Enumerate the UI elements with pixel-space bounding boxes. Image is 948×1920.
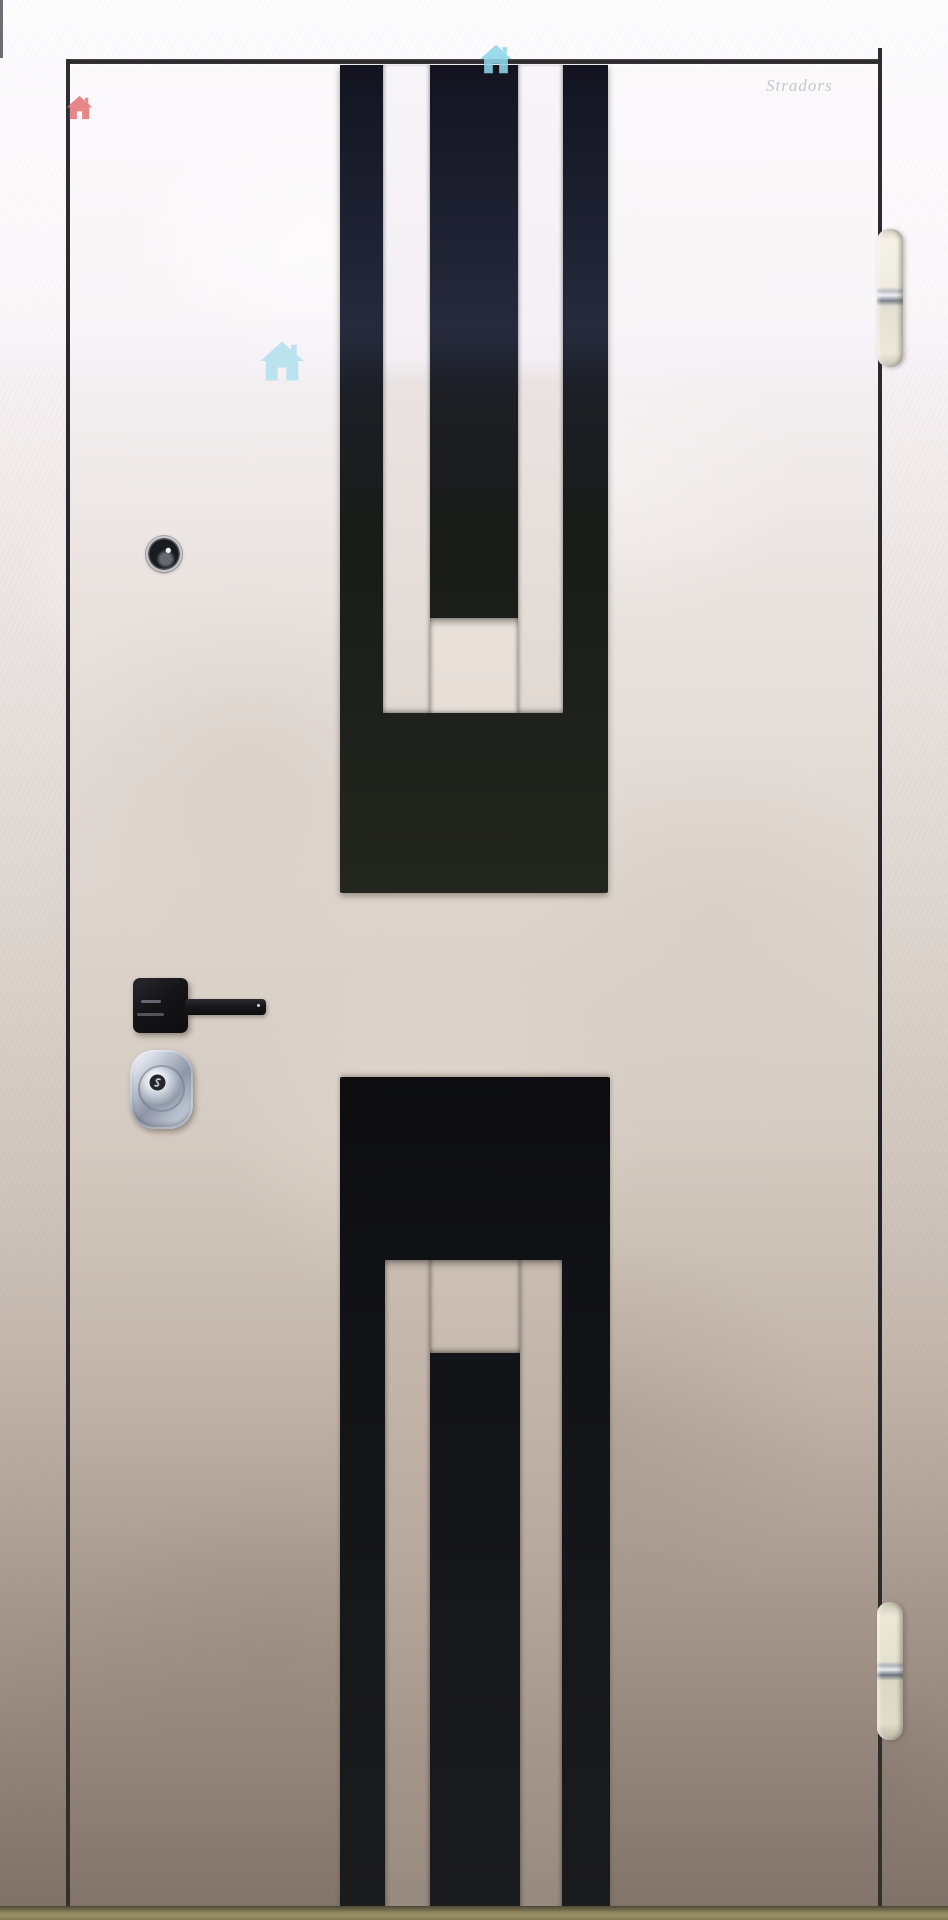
lock-cylinder-escutcheon	[130, 1050, 193, 1129]
top-design-left-slot	[383, 65, 430, 713]
frame-corner-sliver	[0, 0, 3, 58]
bottom-design-left-slot	[385, 1260, 430, 1912]
handle-lever-screw	[257, 1004, 260, 1007]
door-handle-lever	[186, 999, 266, 1015]
frame-gap-left	[66, 59, 70, 1920]
lock-cylinder-face	[138, 1065, 185, 1112]
door-photo: Stradors	[0, 0, 948, 1920]
bottom-black-panel-design	[340, 1077, 610, 1912]
top-black-panel-design	[340, 65, 608, 893]
frame-gap-top	[66, 59, 882, 64]
bottom-design-center-slot	[430, 1260, 520, 1353]
handle-rose-detail-line	[141, 1000, 161, 1003]
keyhole-icon	[149, 1074, 166, 1091]
bottom-design-right-slot	[520, 1260, 562, 1912]
top-design-center-slot	[430, 618, 518, 713]
hinge-bottom	[877, 1602, 903, 1740]
top-design-right-slot	[518, 65, 563, 713]
hinge-top	[877, 229, 903, 367]
floor-threshold	[0, 1906, 948, 1920]
peephole	[146, 536, 182, 572]
handle-rose-detail-line	[137, 1013, 164, 1016]
door-handle-rose	[133, 978, 188, 1033]
